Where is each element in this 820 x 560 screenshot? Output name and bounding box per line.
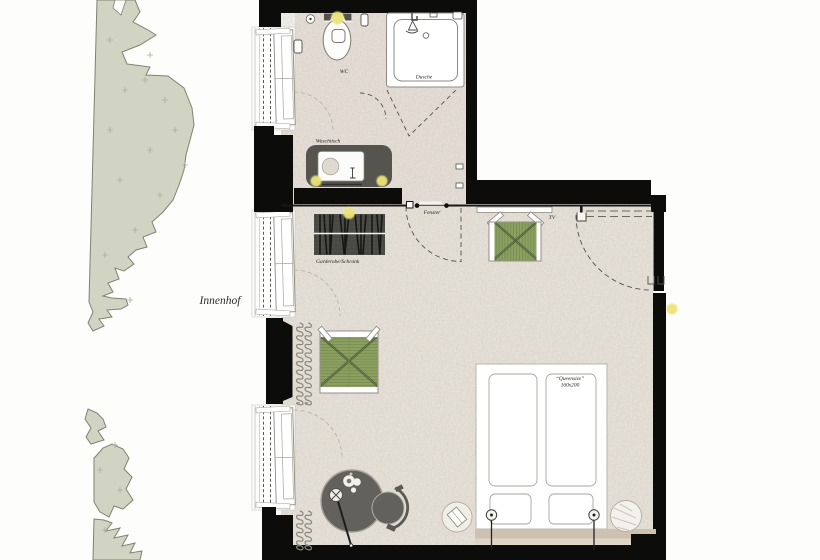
svg-text:Innenhof: Innenhof (199, 295, 243, 307)
svg-text:TV: TV (549, 215, 556, 221)
svg-text:Garderobe/Schrank: Garderobe/Schrank (316, 259, 360, 265)
svg-text:Dusche: Dusche (415, 75, 433, 81)
svg-text:WC: WC (340, 69, 349, 75)
svg-text:“Queensize”: “Queensize” (556, 375, 584, 382)
svg-text:160x200: 160x200 (561, 383, 580, 389)
svg-text:Waschtisch: Waschtisch (316, 139, 341, 145)
svg-text:Fenster: Fenster (423, 210, 442, 216)
